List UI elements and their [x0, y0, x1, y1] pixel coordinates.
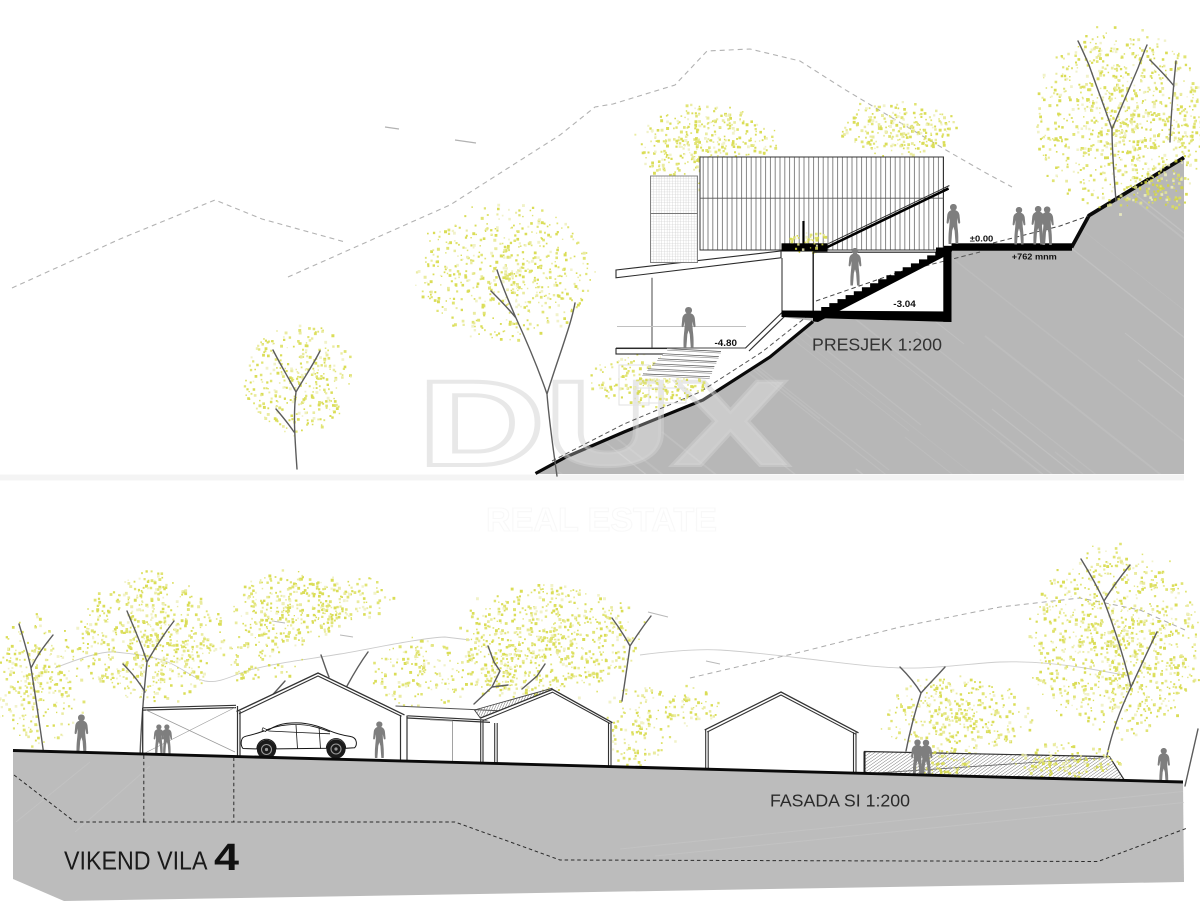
- svg-text:FASADA SI 1:200: FASADA SI 1:200: [770, 791, 910, 811]
- svg-text:±0.00: ±0.00: [970, 234, 994, 244]
- svg-text:-4.80: -4.80: [715, 338, 738, 348]
- svg-text:4: 4: [214, 837, 239, 879]
- svg-text:REAL ESTATE: REAL ESTATE: [486, 501, 717, 538]
- svg-text:-3.04: -3.04: [893, 299, 916, 309]
- svg-text:DUX: DUX: [418, 355, 789, 491]
- svg-text:+762 mnm: +762 mnm: [1012, 252, 1057, 262]
- svg-text:VIKEND VILA: VIKEND VILA: [64, 848, 208, 876]
- svg-text:PRESJEK 1:200: PRESJEK 1:200: [812, 335, 942, 355]
